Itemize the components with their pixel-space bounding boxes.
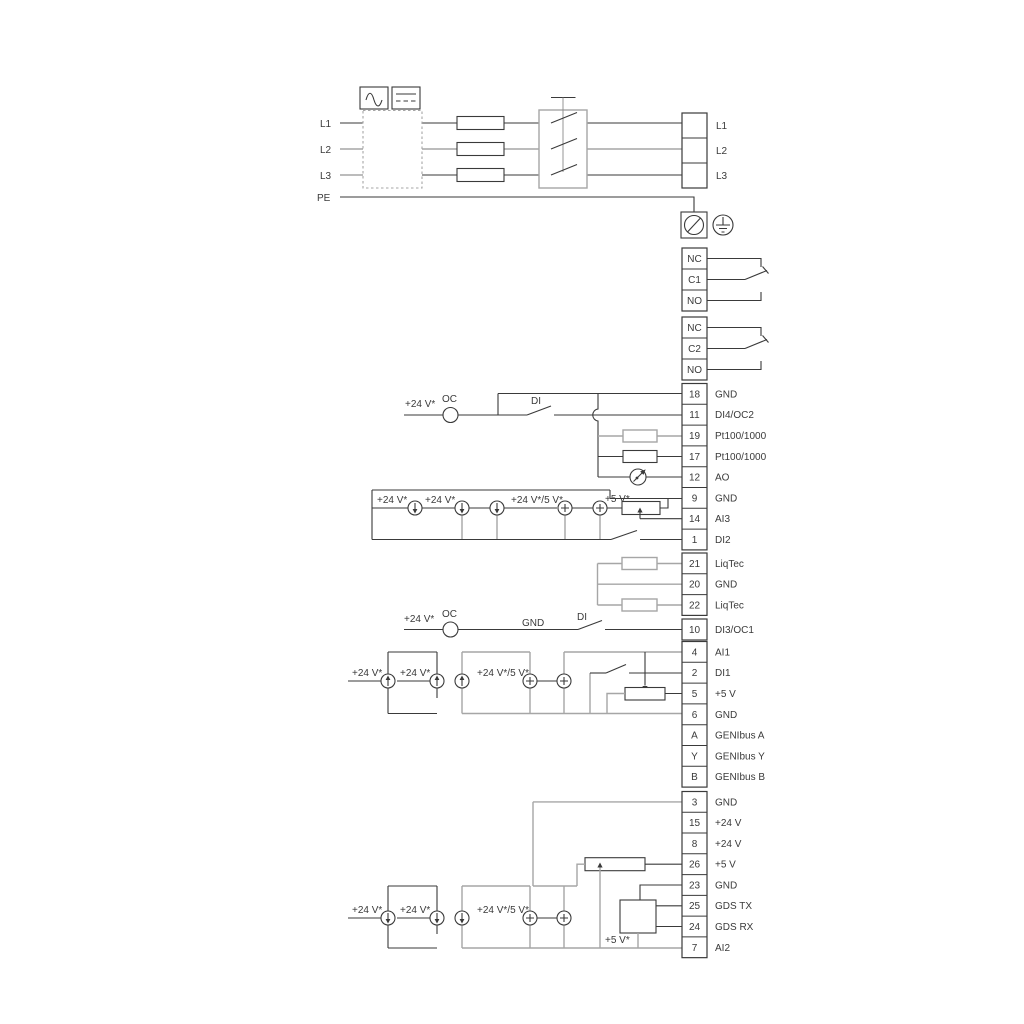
- power-output-block-box: [682, 113, 707, 188]
- plus-source-icon: [523, 674, 537, 688]
- terminal-group-io3-label: GDS RX: [715, 922, 754, 933]
- main-disconnect-switch: [539, 98, 587, 189]
- terminal-group-io1-label: DI2: [715, 535, 731, 546]
- terminal-group-liqtec-number: 20: [689, 580, 701, 591]
- di3-supply-label: +24 V*: [404, 614, 434, 625]
- earth-ground-icon: [713, 215, 733, 235]
- ai2-supply1-label: +24 V*: [352, 905, 382, 916]
- terminal-group-di3oc1-label: DI3/OC1: [715, 625, 754, 636]
- current-source-icon: [455, 501, 469, 515]
- terminal-group-io3-label: GDS TX: [715, 901, 752, 912]
- plus-source-icon: [557, 674, 571, 688]
- ai2-supply3-label: +24 V*/5 V*: [477, 905, 529, 916]
- terminal-group-io2-number: A: [691, 731, 698, 742]
- di3-di-label: DI: [577, 612, 587, 623]
- power-output-block-label: L2: [716, 146, 728, 157]
- terminal-group-io2-number: Y: [691, 751, 698, 762]
- terminal-group-io1-number: 17: [689, 452, 701, 463]
- terminal-group-io2-number: 4: [692, 647, 698, 658]
- di3-gnd-label: GND: [522, 618, 544, 629]
- pt100-sensor-17: [623, 451, 657, 463]
- terminal-group-io1-number: 1: [692, 535, 698, 546]
- potentiometer-ai2: [585, 858, 645, 871]
- gds-sensor-box: [620, 900, 656, 933]
- plus-source-icon: [557, 911, 571, 925]
- terminal-group-io2-number: 6: [692, 710, 698, 721]
- terminal-group-liqtec-number: 21: [689, 559, 701, 570]
- terminal-group-io3-label: +24 V: [715, 818, 742, 829]
- ai3-supply2-label: +24 V*: [425, 495, 455, 506]
- di4-supply-label: +24 V*: [405, 399, 435, 410]
- wire-segment: [392, 87, 420, 109]
- terminal-group-liqtec-number: 22: [689, 601, 701, 612]
- current-source-icon: [490, 501, 504, 515]
- current-source-icon: [455, 674, 469, 688]
- di3-oc-label: OC: [442, 609, 457, 620]
- wiring-diagram-canvas: L1 L2 L3 PE: [0, 0, 1024, 1024]
- terminal-group-io3-label: GND: [715, 880, 737, 891]
- terminal-group-io3-number: 23: [689, 880, 701, 891]
- terminal-group-io2-label: +5 V: [715, 689, 736, 700]
- power-input-label-pe: PE: [317, 193, 331, 204]
- terminal-group-io1-label: GND: [715, 389, 737, 400]
- relay-1-block: NCC1NO: [682, 248, 707, 311]
- terminal-group-io2-label: GENIbus A: [715, 731, 765, 742]
- terminal-group-liqtec-label: GND: [715, 580, 737, 591]
- di4-di-label: DI: [531, 396, 541, 407]
- open-collector-icon: [443, 622, 458, 637]
- ai1-supply1-label: +24 V*: [352, 668, 382, 679]
- relay-2-block: NCC2NO: [682, 317, 707, 380]
- wiring-diagram: L1 L2 L3 PE: [0, 0, 1024, 1024]
- terminal-group-io2-label: DI1: [715, 668, 731, 679]
- terminal-group-io3-label: AI2: [715, 943, 730, 954]
- terminal-group-io1-label: Pt100/1000: [715, 431, 767, 442]
- ac-wave-icon: [360, 87, 388, 109]
- relay-1-block-cell-label: NC: [687, 254, 701, 265]
- terminal-group-io1-number: 12: [689, 473, 701, 484]
- terminal-group-io3-number: 7: [692, 943, 698, 954]
- terminal-group-io3-number: 15: [689, 818, 701, 829]
- terminal-group-io1-number: 11: [689, 410, 700, 421]
- background: [0, 0, 1024, 1024]
- wire-segment: [636, 477, 639, 480]
- relay-2-block-cell-label: C2: [688, 344, 701, 355]
- current-source-icon: [408, 501, 422, 515]
- terminal-group-io3-number: 25: [689, 901, 701, 912]
- terminal-group-io3-number: 8: [692, 839, 698, 850]
- ai3-supply3-label: +24 V*/5 V*: [511, 495, 563, 506]
- terminal-group-io3-number: 24: [689, 922, 701, 933]
- wire-segment: [360, 87, 388, 109]
- terminal-group-io3-label: +24 V: [715, 839, 742, 850]
- terminal-group-io1-label: AI3: [715, 514, 730, 525]
- plus-source-icon: [593, 501, 607, 515]
- terminal-group-io2-label: GND: [715, 710, 737, 721]
- terminal-group-io1-label: DI4/OC2: [715, 410, 754, 421]
- relay-2-block-cell-label: NO: [687, 365, 702, 376]
- current-source-icon: [381, 911, 395, 925]
- plus-source-icon: [558, 501, 572, 515]
- ai1-supply2-label: +24 V*: [400, 668, 430, 679]
- relay-2-block-cell-label: NC: [687, 323, 701, 334]
- power-input-label-l3: L3: [320, 171, 332, 182]
- fuse-l1: [457, 117, 504, 130]
- power-input-label-l2: L2: [320, 145, 332, 156]
- terminal-group-liqtec-label: LiqTec: [715, 559, 744, 570]
- ai2-supply2-label: +24 V*: [400, 905, 430, 916]
- power-output-block: L1L2L3: [682, 113, 728, 188]
- pt100-sensor-19: [623, 430, 657, 442]
- terminal-group-io2-label: AI1: [715, 647, 730, 658]
- ai2-supply4-label: +5 V*: [605, 935, 630, 946]
- terminal-group-io1-label: AO: [715, 473, 730, 484]
- terminal-group-io1-number: 14: [689, 514, 701, 525]
- terminal-group-io2-number: 5: [692, 689, 698, 700]
- terminal-group-io1-number: 9: [692, 493, 698, 504]
- terminal-group-di3oc1-number: 10: [689, 625, 701, 636]
- power-output-block-label: L1: [716, 121, 728, 132]
- terminal-group-io3-label: GND: [715, 797, 737, 808]
- current-source-icon: [430, 911, 444, 925]
- ai3-supply4-label: +5 V*: [605, 494, 630, 505]
- terminal-group-io1-number: 18: [689, 389, 701, 400]
- terminal-group-io1-label: GND: [715, 493, 737, 504]
- terminal-group-io1-label: Pt100/1000: [715, 452, 767, 463]
- plus-source-icon: [523, 911, 537, 925]
- current-source-icon: [381, 674, 395, 688]
- current-source-icon: [455, 911, 469, 925]
- terminal-group-io3-number: 26: [689, 860, 701, 871]
- terminal-group-io3-number: 3: [692, 797, 698, 808]
- terminal-group-io1-number: 19: [689, 431, 701, 442]
- potentiometer-ai1: [625, 688, 665, 701]
- di4-oc-label: OC: [442, 394, 457, 405]
- relay-1-block-cell-label: C1: [688, 275, 701, 286]
- open-collector-icon: [443, 408, 458, 423]
- liqtec-sensor-21: [622, 558, 657, 570]
- fuse-l3: [457, 169, 504, 182]
- fuse-l2: [457, 143, 504, 156]
- power-input-label-l1: L1: [320, 119, 332, 130]
- screw-terminal-icon: [681, 212, 707, 238]
- ai3-supply1-label: +24 V*: [377, 495, 407, 506]
- terminal-group-io2-label: GENIbus B: [715, 772, 765, 783]
- dc-icon: [392, 87, 420, 109]
- power-output-block-label: L3: [716, 171, 728, 182]
- liqtec-sensor-22: [622, 599, 657, 611]
- terminal-group-io2-number: 2: [692, 668, 698, 679]
- terminal-group-io2-label: GENIbus Y: [715, 751, 765, 762]
- relay-1-block-cell-label: NO: [687, 296, 702, 307]
- terminal-group-io2-number: B: [691, 772, 698, 783]
- current-source-icon: [430, 674, 444, 688]
- ai1-supply3-label: +24 V*/5 V*: [477, 668, 529, 679]
- terminal-group-io3-label: +5 V: [715, 860, 736, 871]
- terminal-group-liqtec-label: LiqTec: [715, 601, 744, 612]
